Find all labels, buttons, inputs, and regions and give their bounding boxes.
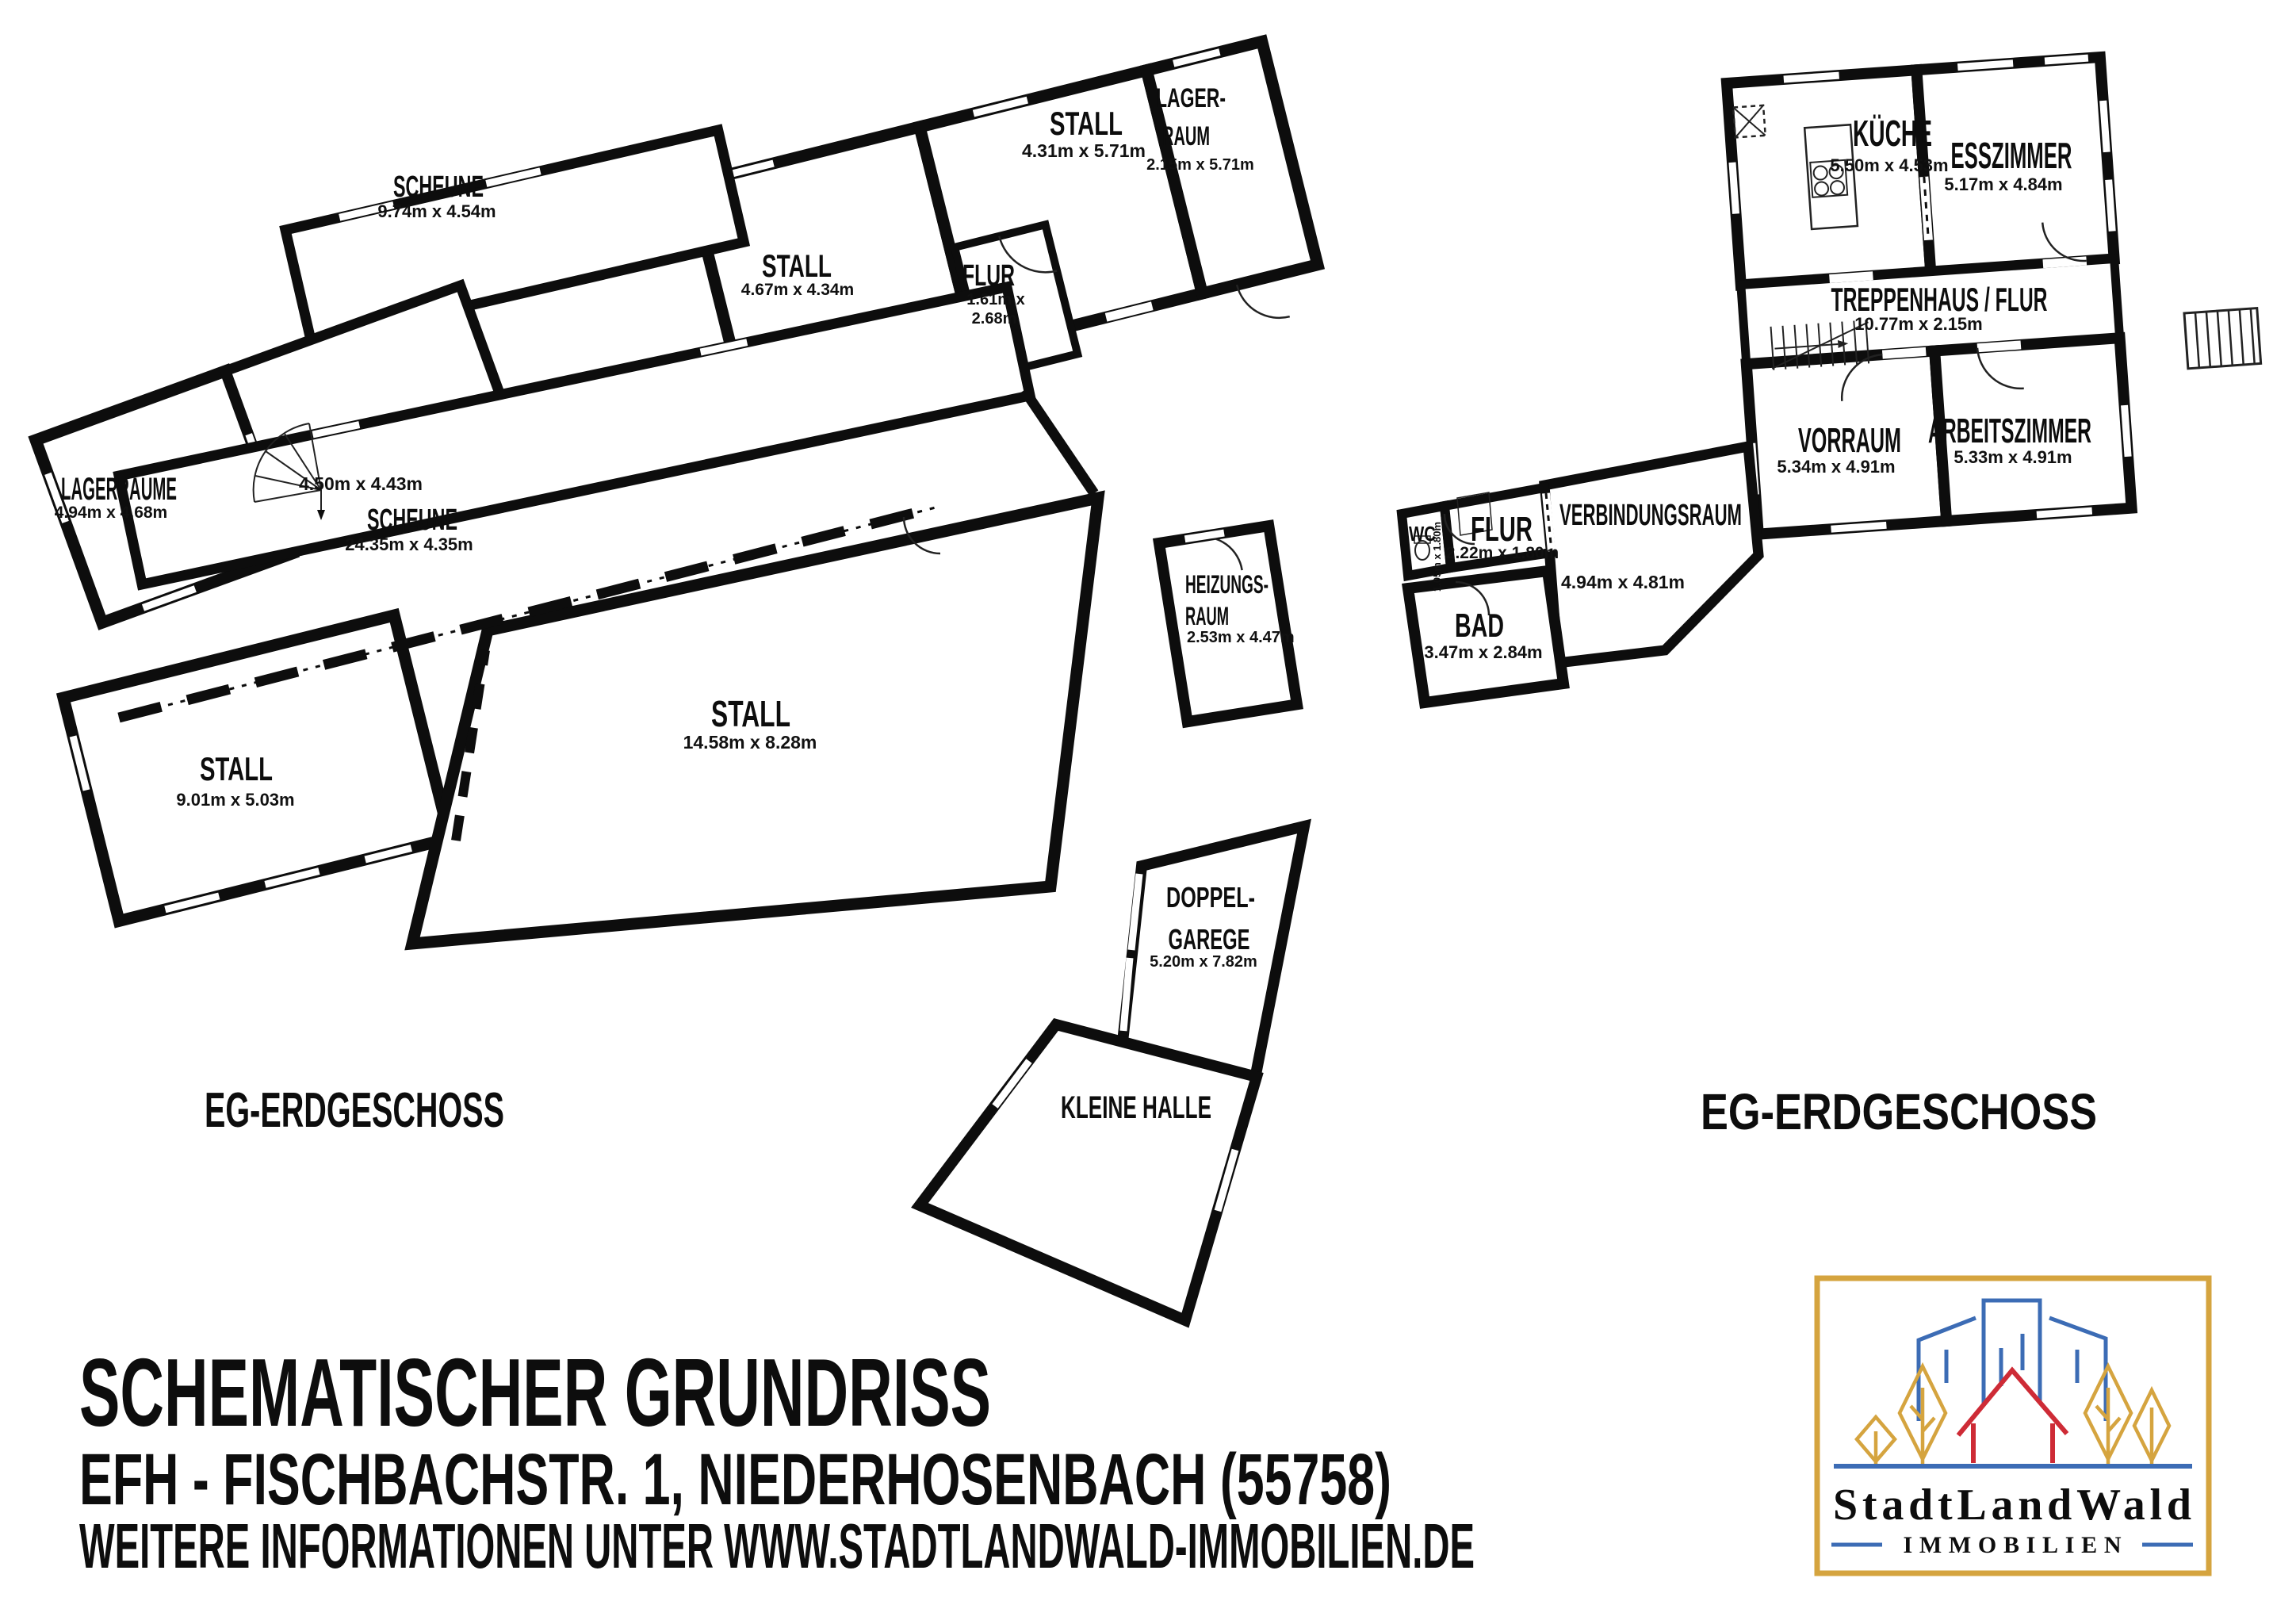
dims-wc: 1.05m x 1.80m xyxy=(1431,522,1443,592)
dims-heizung: 2.53m x 4.47m xyxy=(1187,629,1295,646)
wall-connector xyxy=(1024,390,1094,493)
dims-stall-b: 4.67m x 4.34m xyxy=(741,281,854,299)
room-kleine-halle xyxy=(920,1025,1257,1320)
room-verbindungsraum xyxy=(1544,446,1758,663)
label-stall-c: STALL xyxy=(200,750,273,787)
label-lagerraum-a-2: RAUM xyxy=(1162,121,1210,151)
label-flur-a: FLUR xyxy=(962,259,1015,293)
label-stall-b: STALL xyxy=(762,249,832,284)
dims-lagerraeume: 4.94m x 4.68m xyxy=(55,504,167,522)
label-flur-b: FLUR xyxy=(1471,510,1533,549)
dims-flur-a-2: 2.68m xyxy=(972,310,1017,327)
label-treppenhaus: TREPPENHAUS / FLUR xyxy=(1831,281,2048,318)
label-esszimmer: ESSZIMMER xyxy=(1951,135,2072,176)
floorplan-canvas: STALL 4.31m x 5.71m LAGER- RAUM 2.15m x … xyxy=(0,0,2296,1624)
footer-title: SCHEMATISCHER GRUNDRISS xyxy=(79,1339,991,1446)
label-stall-d: STALL xyxy=(711,693,790,734)
dims-vorraum: 5.34m x 4.91m xyxy=(1777,457,1895,477)
window-mark xyxy=(2037,511,2092,515)
door-gap xyxy=(1830,276,1873,279)
dims-esszimmer: 5.17m x 4.84m xyxy=(1944,174,2062,194)
logo-brand-text: StadtLandWald xyxy=(1833,1480,2191,1530)
wing-scheune-1 xyxy=(285,130,744,342)
label-scheune-2: SCHEUNE xyxy=(367,504,457,537)
dims-scheune-1: 9.74m x 4.54m xyxy=(377,201,496,221)
label-verbindungsraum: VERBINDUNGSRAUM xyxy=(1559,499,1742,532)
label-heizung-2: RAUM xyxy=(1185,602,1229,630)
exterior-stair xyxy=(2184,308,2261,369)
window-mark xyxy=(1784,75,1839,79)
footer-address: EFH - FISCHBACHSTR. 1, NIEDERHOSENBACH (… xyxy=(79,1439,1391,1520)
floor-label-left: EG-ERDGESCHOSS xyxy=(205,1083,504,1138)
label-garage-2: GAREGE xyxy=(1169,923,1250,956)
footer-info: WEITERE INFORMATIONEN UNTER WWW.STADTLAN… xyxy=(79,1511,1475,1581)
door-gap xyxy=(1977,345,2021,348)
label-stall-a: STALL xyxy=(1050,105,1123,142)
dims-bad: 3.47m x 2.84m xyxy=(1424,642,1542,662)
room-kueche xyxy=(1727,70,1931,285)
label-vorraum: VORRAUM xyxy=(1798,421,1901,460)
dims-stall-c: 9.01m x 5.03m xyxy=(176,790,294,810)
dims-stall-d: 14.58m x 8.28m xyxy=(683,732,817,753)
floor-label-right: EG-ERDGESCHOSS xyxy=(1701,1083,2097,1140)
dims-garage: 5.20m x 7.82m xyxy=(1150,953,1257,971)
logo: StadtLandWald IMMOBILIEN xyxy=(1817,1278,2209,1573)
label-arbeitszimmer: ARBEITSZIMMER xyxy=(1928,412,2091,450)
door-gap xyxy=(1882,351,1926,354)
label-lagerraum-a-1: LAGER- xyxy=(1156,83,1226,113)
label-kleine-halle: KLEINE HALLE xyxy=(1061,1090,1211,1125)
dims-kueche: 5.50m x 4.53m xyxy=(1830,155,1948,175)
label-bad: BAD xyxy=(1455,607,1504,644)
window-mark xyxy=(2109,180,2113,232)
dims-stair-room: 4.50m x 4.43m xyxy=(299,473,423,494)
dims-lagerraum-a: 2.15m x 5.71m xyxy=(1146,156,1254,174)
dims-stall-a: 4.31m x 5.71m xyxy=(1022,140,1146,161)
dims-treppenhaus: 10.77m x 2.15m xyxy=(1854,314,1982,334)
dims-arbeitszimmer: 5.33m x 4.91m xyxy=(1954,447,2072,467)
label-garage-1: DOPPEL- xyxy=(1166,881,1255,913)
dims-scheune-2: 24.35m x 4.35m xyxy=(345,534,473,554)
window-mark xyxy=(2103,101,2107,152)
window-mark xyxy=(1957,63,2013,67)
window-mark xyxy=(1831,525,1887,529)
room-scheune-1 xyxy=(285,130,744,342)
window-mark xyxy=(2045,58,2088,61)
label-kueche: KÜCHE xyxy=(1853,113,1932,154)
label-heizung-1: HEIZUNGS- xyxy=(1185,570,1269,599)
dims-verbindungsraum: 4.94m x 4.81m xyxy=(1561,572,1685,592)
label-lagerraeume: LAGERRÄUME xyxy=(61,472,177,507)
label-scheune-1: SCHEUNE xyxy=(393,170,484,204)
window-mark xyxy=(1732,163,1736,214)
floorplan-page: STALL 4.31m x 5.71m LAGER- RAUM 2.15m x … xyxy=(0,0,2296,1624)
dims-flur-b: 2.22m x 1.80m xyxy=(1446,544,1559,562)
dims-flur-a-1: 1.61m x xyxy=(966,291,1024,308)
window-mark xyxy=(2125,405,2129,457)
logo-tagline-text: IMMOBILIEN xyxy=(1904,1532,2122,1558)
